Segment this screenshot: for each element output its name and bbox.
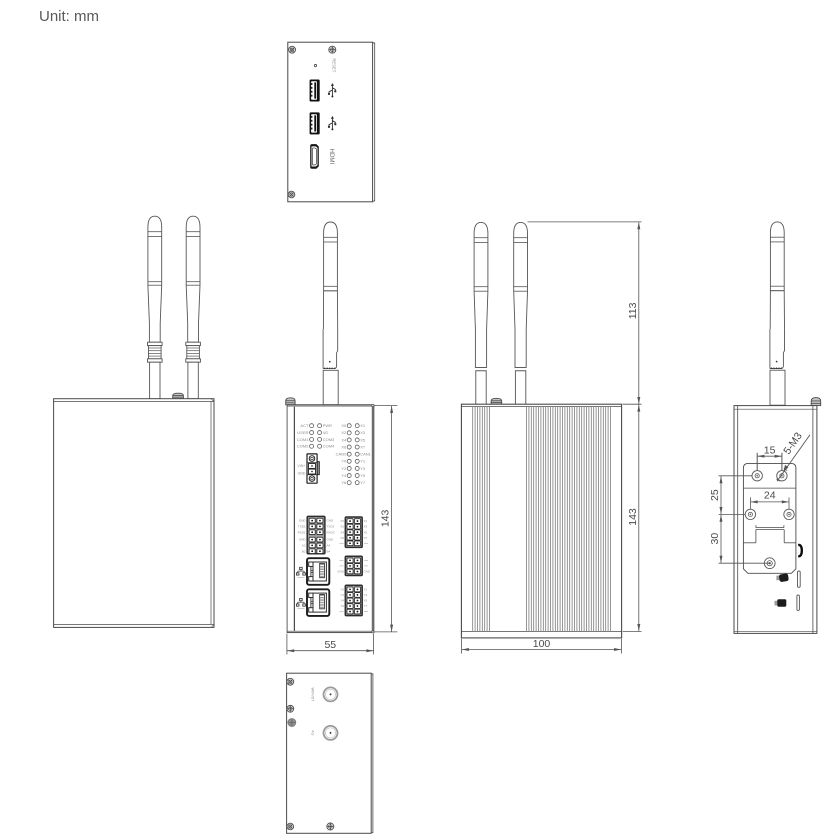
svg-text:X7: X7: [360, 444, 366, 449]
svg-text:X3: X3: [364, 525, 368, 529]
svg-text:100: 100: [533, 638, 551, 650]
svg-text:COM4: COM4: [323, 444, 335, 449]
svg-text:Y4: Y4: [340, 599, 344, 603]
svg-text:B4: B4: [327, 549, 331, 553]
svg-text:RXD1: RXD1: [298, 530, 306, 534]
svg-text:COM3: COM3: [323, 437, 335, 442]
svg-text:B2: B2: [302, 549, 306, 553]
svg-text:X5: X5: [364, 530, 368, 534]
svg-text:GND: GND: [327, 538, 335, 542]
svg-text:WIFI/BT: WIFI/BT: [311, 687, 315, 702]
svg-text:CAN1: CAN1: [360, 452, 371, 457]
svg-text:113: 113: [627, 302, 639, 319]
svg-text:X2: X2: [341, 430, 347, 435]
svg-text:GND: GND: [299, 538, 307, 542]
svg-text:30: 30: [709, 533, 721, 545]
svg-text:X6: X6: [340, 536, 344, 540]
svg-text:4G: 4G: [311, 730, 315, 735]
svg-text:X2: X2: [340, 525, 344, 529]
svg-text:A2: A2: [302, 544, 306, 548]
svg-text:Y3: Y3: [360, 466, 366, 471]
svg-text:X0: X0: [340, 519, 344, 523]
svg-text:COM2: COM2: [297, 444, 309, 449]
svg-text:X5: X5: [360, 437, 366, 442]
svg-text:Y5: Y5: [364, 599, 368, 603]
svg-text:Y6: Y6: [341, 480, 347, 485]
svg-text:TXD1: TXD1: [298, 525, 306, 529]
svg-text:COM1: COM1: [297, 437, 309, 442]
svg-text:4G: 4G: [323, 430, 328, 435]
svg-text:X7: X7: [364, 536, 368, 540]
svg-text:GND: GND: [327, 519, 335, 523]
svg-text:X4: X4: [340, 530, 344, 534]
svg-text:X1: X1: [364, 519, 368, 523]
svg-text:VIN+: VIN+: [298, 464, 306, 468]
svg-text:Y4: Y4: [341, 473, 347, 478]
svg-text:HDMI: HDMI: [328, 148, 335, 164]
svg-text:Y1: Y1: [364, 587, 368, 591]
svg-text:X4: X4: [341, 437, 347, 442]
svg-text:55: 55: [324, 639, 336, 651]
svg-text:TXD3: TXD3: [327, 525, 335, 529]
svg-text:RXD3: RXD3: [327, 530, 335, 534]
svg-text:X6: X6: [341, 444, 347, 449]
svg-text:USER: USER: [297, 430, 308, 435]
svg-text:GND: GND: [337, 570, 345, 574]
svg-text:GND: GND: [299, 519, 307, 523]
svg-text:X3: X3: [360, 430, 366, 435]
svg-text:Y6: Y6: [340, 604, 344, 608]
svg-text:GND: GND: [364, 570, 372, 574]
svg-text:143: 143: [380, 509, 392, 527]
svg-text:GND: GND: [298, 472, 306, 476]
svg-text:Y1: Y1: [360, 459, 366, 464]
svg-text:25: 25: [709, 489, 721, 501]
svg-text:ACT: ACT: [300, 423, 309, 428]
svg-text:Y3: Y3: [364, 593, 368, 597]
svg-text:Unit: mm: Unit: mm: [39, 8, 99, 25]
svg-text:143: 143: [627, 508, 639, 526]
svg-text:X0: X0: [341, 423, 347, 428]
svg-text:A4: A4: [327, 544, 331, 548]
svg-text:X1: X1: [360, 423, 366, 428]
svg-text:Y5: Y5: [360, 473, 366, 478]
svg-text:CAN0: CAN0: [336, 452, 347, 457]
svg-text:Y7: Y7: [364, 604, 368, 608]
svg-text:24: 24: [764, 490, 776, 502]
svg-text:Y7: Y7: [360, 480, 366, 485]
svg-text:PWR: PWR: [323, 423, 332, 428]
svg-text:15: 15: [764, 444, 776, 456]
svg-text:Y0: Y0: [341, 459, 347, 464]
svg-text:Y2: Y2: [341, 466, 347, 471]
svg-text:RESET: RESET: [331, 58, 336, 72]
svg-text:Y0: Y0: [340, 587, 344, 591]
svg-text:Y2: Y2: [340, 593, 344, 597]
